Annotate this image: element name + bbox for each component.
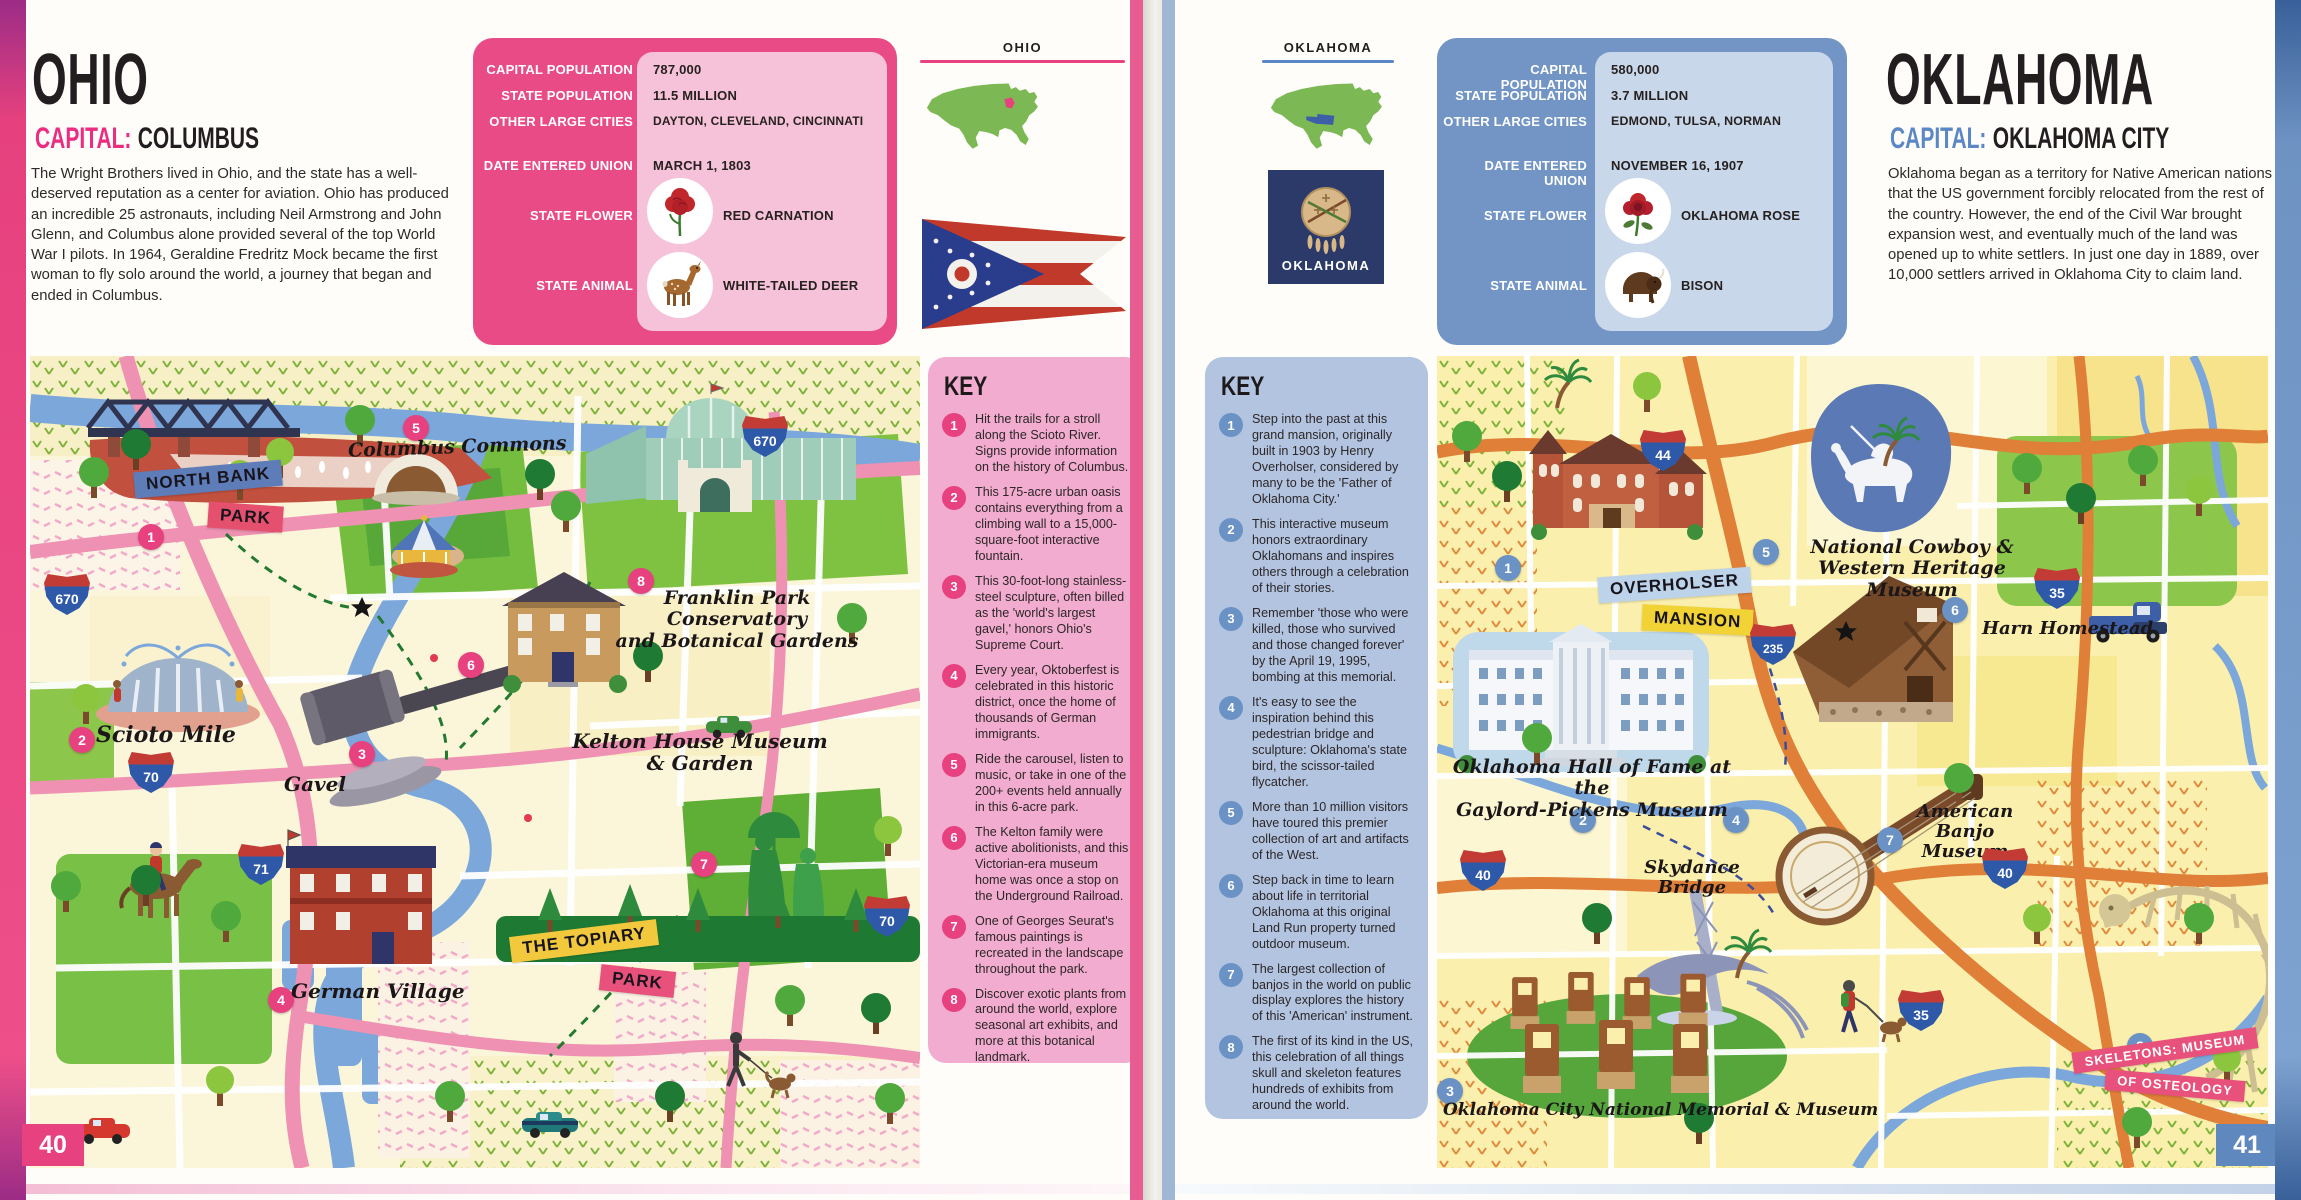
key-item: 7One of Georges Seurat's famous painting… <box>942 914 1131 978</box>
key-item: 3Remember 'those who were killed, those … <box>1219 606 1416 686</box>
info-label: STATE POPULATION <box>1443 88 1587 103</box>
map-marker-7: 7 <box>691 851 717 877</box>
info-value: MARCH 1, 1803 <box>653 158 751 173</box>
skydance-bridge-label: SkydanceBridge <box>1632 858 1752 898</box>
state-flower-circle <box>1605 178 1671 244</box>
oklahoma-info-box: CAPITAL POPULATION STATE POPULATION OTHE… <box>1437 38 1847 345</box>
info-label: CAPITAL POPULATION <box>483 62 633 77</box>
state-animal-circle <box>1605 252 1671 318</box>
info-label: OTHER LARGE CITIES <box>483 114 633 129</box>
info-label: OTHER LARGE CITIES <box>1443 114 1587 129</box>
key-item: 4Every year, Oktoberfest is celebrated i… <box>942 663 1131 743</box>
oklahoma-tab-rule <box>1262 60 1394 63</box>
right-page-edge-strip <box>1162 0 1175 1200</box>
key-item: 7The largest collection of banjos in the… <box>1219 962 1416 1026</box>
info-value: NOVEMBER 16, 1907 <box>1611 158 1744 173</box>
key-item: 8Discover exotic plants from around the … <box>942 987 1131 1064</box>
info-value: 11.5 MILLION <box>653 88 737 103</box>
franklin-park-label: Franklin Park Conservatoryand Botanical … <box>612 588 862 652</box>
deer-icon <box>653 258 707 312</box>
oklahoma-capital-line: CAPITAL:OKLAHOMA CITY <box>1890 124 2169 154</box>
info-label: STATE ANIMAL <box>1443 278 1587 293</box>
info-label: STATE POPULATION <box>483 88 633 103</box>
info-label: DATE ENTERED UNION <box>483 158 633 173</box>
atlas-book-spread: OHIO CAPITAL:COLUMBUS The Wright Brother… <box>0 0 2301 1200</box>
info-label: STATE FLOWER <box>483 208 633 223</box>
memorial-label: Oklahoma City National Memorial & Museum <box>1443 1100 1878 1120</box>
oklahoma-key-heading: KEY <box>1221 371 1373 402</box>
ohio-info-box: CAPITAL POPULATION STATE POPULATION OTHE… <box>473 38 897 345</box>
hall-of-fame-label: Oklahoma Hall of Fame at theGaylord-Pick… <box>1452 757 1732 821</box>
ohio-capital-line: CAPITAL:COLUMBUS <box>35 124 259 154</box>
oklahoma-flag-text: OKLAHOMA <box>1268 258 1384 273</box>
cowboy-museum-illustration <box>1811 384 1951 532</box>
kelton-house-label: Kelton House Museum& Garden <box>570 730 830 775</box>
map-marker-6: 6 <box>458 652 484 678</box>
map-marker-2: 2 <box>69 727 95 753</box>
state-flower-circle <box>647 178 713 244</box>
ohio-key-panel: KEY 1Hit the trails for a stroll along t… <box>928 357 1143 1063</box>
key-item: 2This 175-acre urban oasis contains ever… <box>942 485 1131 565</box>
info-value: OKLAHOMA ROSE <box>1681 208 1800 223</box>
oklahoma-state-tab: OKLAHOMA <box>1262 40 1394 55</box>
ohio-page: OHIO CAPITAL:COLUMBUS The Wright Brother… <box>0 0 1150 1200</box>
german-village-label: German Village <box>291 979 465 1003</box>
ohio-capital-label: CAPITAL: <box>35 122 131 155</box>
key-item: 6Step back in time to learn about life i… <box>1219 873 1416 953</box>
info-value: RED CARNATION <box>723 208 834 223</box>
map-marker-3: 3 <box>349 741 375 767</box>
left-page-spine <box>0 0 26 1200</box>
ohio-title: OHIO <box>32 44 149 116</box>
map-marker-1: 1 <box>138 524 164 550</box>
gavel-label: Gavel <box>284 772 346 796</box>
map-marker-1: 1 <box>1495 555 1521 581</box>
map-marker-6: 6 <box>1942 597 1968 623</box>
info-label: STATE FLOWER <box>1443 208 1587 223</box>
ohio-capital-name: COLUMBUS <box>138 122 259 155</box>
info-value: DAYTON, CLEVELAND, CINCINNATI <box>653 114 863 129</box>
info-value: 787,000 <box>653 62 701 77</box>
oklahoma-title: OKLAHOMA <box>1886 44 2154 116</box>
oklahoma-capital-name: OKLAHOMA CITY <box>1993 122 2170 155</box>
key-item: 3This 30-foot-long stainless-steel sculp… <box>942 574 1131 654</box>
cowboy-museum-label: National Cowboy &Western Heritage Museum <box>1782 537 2042 601</box>
right-page-bottom-edge <box>1175 1184 2275 1194</box>
rose-icon <box>1611 184 1665 238</box>
german-village-illustration <box>286 830 436 964</box>
map-marker-5: 5 <box>1753 539 1779 565</box>
info-value: WHITE-TAILED DEER <box>723 278 858 293</box>
ohio-tab-rule <box>920 60 1125 63</box>
left-page-number: 40 <box>22 1124 84 1166</box>
key-item: 5More than 10 million visitors have tour… <box>1219 800 1416 864</box>
ohio-us-locator-map <box>922 68 1044 166</box>
ohio-key-heading: KEY <box>944 371 1090 402</box>
carnation-icon <box>653 184 707 238</box>
state-animal-circle <box>647 252 713 318</box>
left-page-bottom-edge <box>26 1184 1130 1194</box>
key-item: 6The Kelton family were active abolition… <box>942 825 1131 905</box>
info-value: EDMOND, TULSA, NORMAN <box>1611 114 1781 129</box>
ohio-intro-paragraph: The Wright Brothers lived in Ohio, and t… <box>31 164 463 306</box>
info-label: STATE ANIMAL <box>483 278 633 293</box>
info-value: BISON <box>1681 278 1723 293</box>
info-value: 3.7 MILLION <box>1611 88 1688 103</box>
right-page-spine <box>2275 0 2301 1200</box>
bison-icon <box>1611 258 1665 312</box>
ohio-state-tab: OHIO <box>920 40 1125 55</box>
key-item: 1Step into the past at this grand mansio… <box>1219 412 1416 508</box>
oklahoma-intro-paragraph: Oklahoma began as a territory for Native… <box>1888 164 2286 286</box>
key-item: 5Ride the carousel, listen to music, or … <box>942 752 1131 816</box>
info-value: 580,000 <box>1611 62 1659 77</box>
oklahoma-us-locator-map <box>1266 68 1388 166</box>
oklahoma-capital-label: CAPITAL: <box>1890 122 1986 155</box>
left-page-edge-strip <box>1130 0 1143 1200</box>
key-item: 2This interactive museum honors extraord… <box>1219 517 1416 597</box>
north-bank-park-banner-2: PARK <box>207 501 284 532</box>
harn-homestead-label: Harn Homestead <box>1982 618 2153 639</box>
key-item: 4It's easy to see the inspiration behind… <box>1219 695 1416 791</box>
right-page-number: 41 <box>2216 1124 2278 1166</box>
key-item: 1Hit the trails for a stroll along the S… <box>942 412 1131 476</box>
hall-of-fame-illustration <box>1453 624 1709 773</box>
ohio-flag <box>922 213 1126 335</box>
info-label: DATE ENTERED UNION <box>1443 158 1587 188</box>
scioto-mile-label: Scioto Mile <box>96 722 236 748</box>
key-item: 8The first of its kind in the US, this c… <box>1219 1034 1416 1114</box>
oklahoma-key-panel: KEY 1Step into the past at this grand ma… <box>1205 357 1428 1119</box>
